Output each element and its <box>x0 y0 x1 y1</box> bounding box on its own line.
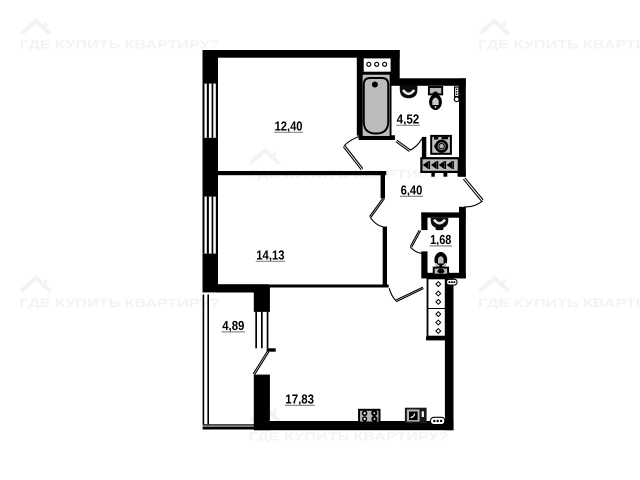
svg-text:4,52: 4,52 <box>397 111 420 126</box>
svg-text:4,89: 4,89 <box>222 318 244 333</box>
svg-text:ГДЕ КУПИТЬ КВАРТИРУ?: ГДЕ КУПИТЬ КВАРТИРУ? <box>20 296 220 310</box>
svg-text:ГДЕ КУПИТЬ КВАРТИРУ?: ГДЕ КУПИТЬ КВАРТИРУ? <box>20 38 220 52</box>
svg-text:6,40: 6,40 <box>401 183 423 198</box>
svg-text:17,83: 17,83 <box>285 392 314 407</box>
svg-text:ГДЕ КУПИТЬ КВАРТИРУ?: ГДЕ КУПИТЬ КВАРТИРУ? <box>249 429 449 443</box>
svg-text:12,40: 12,40 <box>275 118 303 133</box>
svg-text:1,68: 1,68 <box>430 232 451 247</box>
svg-text:ГДЕ КУПИТЬ КВАРТИРУ?: ГДЕ КУПИТЬ КВАРТИРУ? <box>478 296 640 310</box>
svg-text:ГДЕ КУПИТЬ КВАРТИРУ?: ГДЕ КУПИТЬ КВАРТИРУ? <box>478 38 640 52</box>
svg-text:14,13: 14,13 <box>256 247 284 262</box>
